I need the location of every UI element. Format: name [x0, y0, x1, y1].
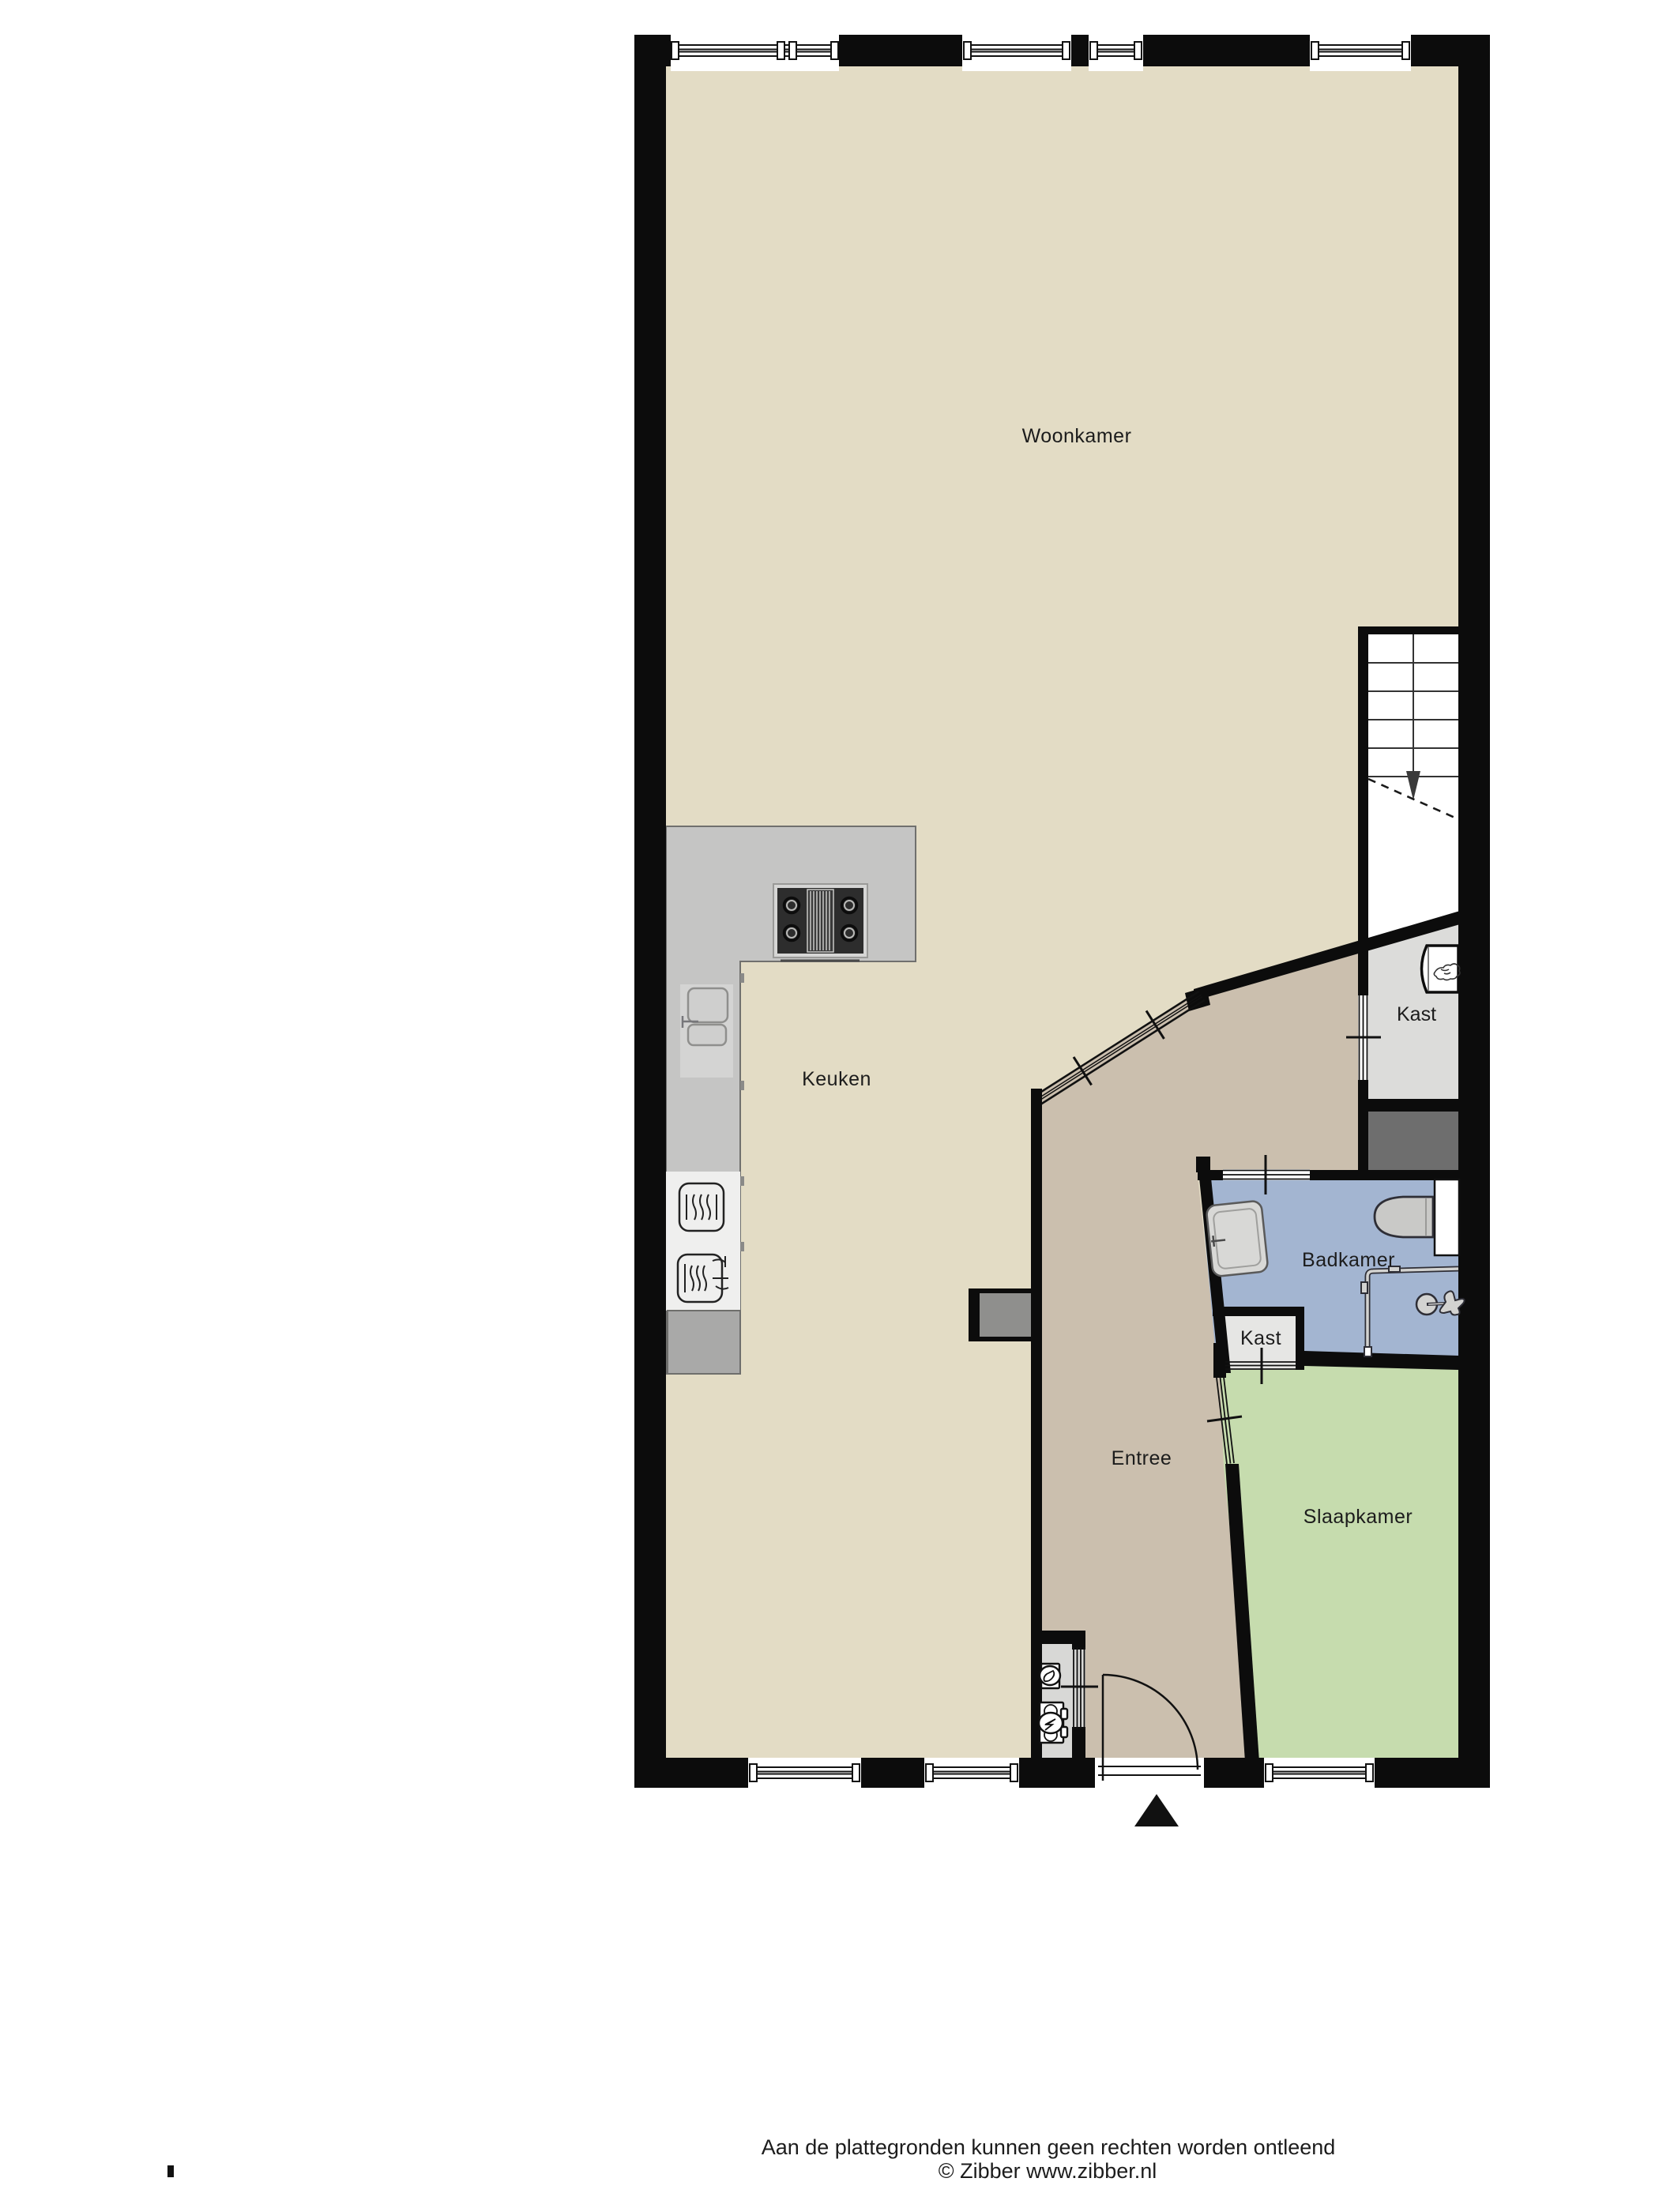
svg-text:Slaapkamer: Slaapkamer: [1303, 1506, 1413, 1528]
svg-text:Kast: Kast: [1397, 1003, 1436, 1025]
svg-text:Aan de plattegronden kunnen ge: Aan de plattegronden kunnen geen rechten…: [762, 2135, 1336, 2159]
svg-text:Entree: Entree: [1112, 1447, 1172, 1469]
svg-text:Badkamer: Badkamer: [1302, 1249, 1395, 1271]
svg-text:© Zibber www.zibber.nl: © Zibber www.zibber.nl: [939, 2159, 1157, 2183]
svg-text:Woonkamer: Woonkamer: [1022, 425, 1132, 447]
svg-text:Keuken: Keuken: [802, 1068, 871, 1090]
svg-text:Kast: Kast: [1240, 1327, 1281, 1349]
